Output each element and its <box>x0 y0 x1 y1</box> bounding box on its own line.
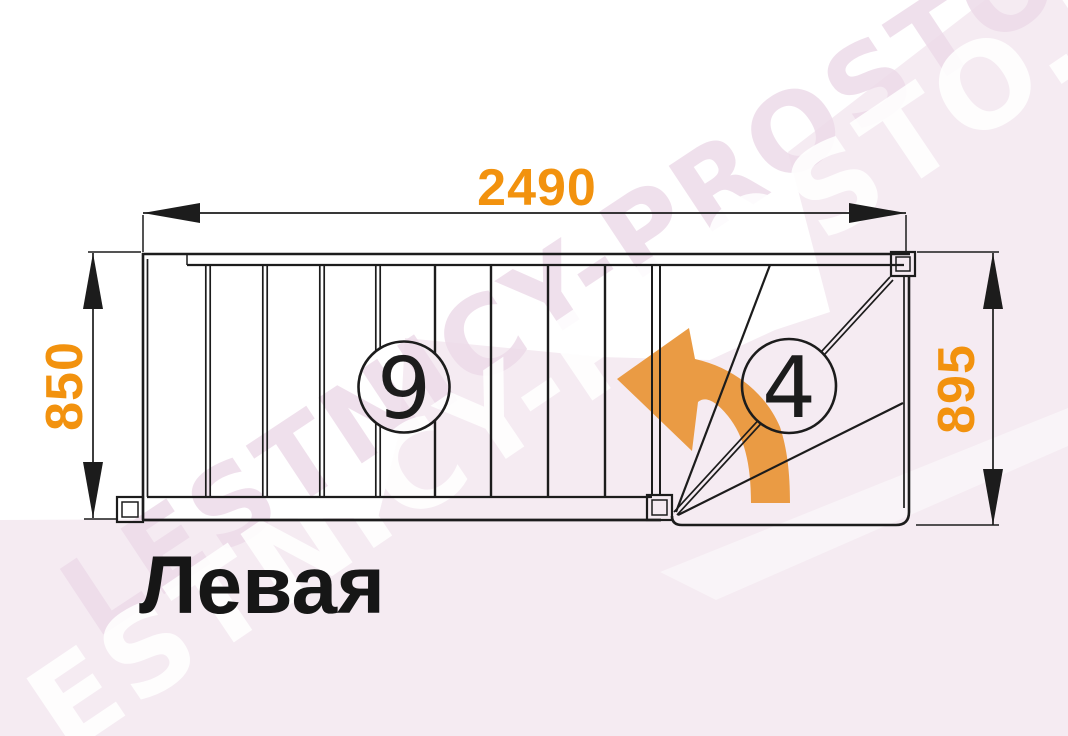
plan-caption: Левая <box>139 540 385 631</box>
stair-plan-diagram: LESTNICY-PROSTO.RU LESTNICY-PROSTO.RU <box>0 0 1068 736</box>
winder-steps-count: 4 <box>762 339 816 438</box>
dimension-left: 850 <box>36 252 141 519</box>
dimension-left-value: 850 <box>36 341 94 431</box>
arrowhead-up-icon <box>83 253 103 309</box>
arrowhead-down-icon <box>83 462 103 518</box>
stair-plan-canvas: LESTNICY-PROSTO.RU LESTNICY-PROSTO.RU <box>0 0 1068 736</box>
dimension-top-value: 2490 <box>477 159 597 217</box>
straight-steps-count: 9 <box>377 340 431 439</box>
arrowhead-left-icon <box>143 203 200 223</box>
dimension-right-value: 895 <box>928 344 986 434</box>
